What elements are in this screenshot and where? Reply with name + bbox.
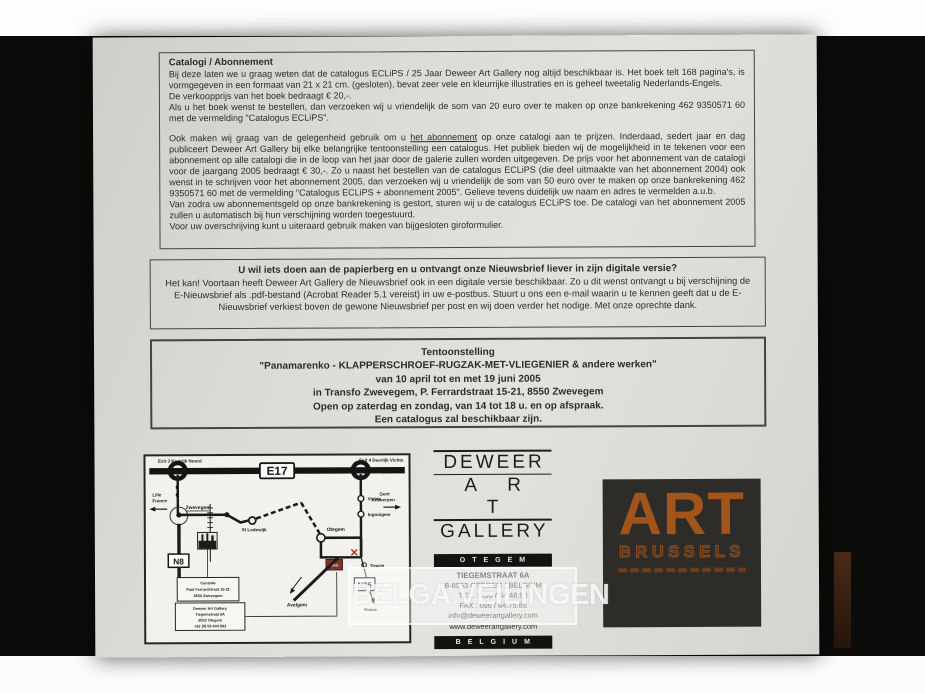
exit3-label: Exit 3 Kortrijk Noord xyxy=(158,458,202,463)
france-label: France xyxy=(152,498,167,503)
underlined-text: het abonnement xyxy=(410,132,477,142)
road-dashed-up xyxy=(256,503,301,519)
centrale-line3: 8550 Zwevegem xyxy=(194,594,224,598)
lille-label: Lille xyxy=(152,492,162,497)
n8-badge-label: N8 xyxy=(173,556,184,566)
red-cross-marker xyxy=(351,549,357,555)
factory-silhouette xyxy=(199,541,217,549)
st-lodewijk-label: St Lodewijk xyxy=(242,527,268,532)
gallery-line3: 8553 Otegem xyxy=(198,618,222,622)
factory-chimney xyxy=(211,535,213,541)
logo-word-gallery: GALLERY xyxy=(434,520,552,543)
art-brussels-subtitle: BRUSSELS xyxy=(603,543,761,563)
paragraph: Van zodra uw abonnementsgeld op onze ban… xyxy=(169,197,745,221)
top-white-band xyxy=(0,0,925,36)
photo-of-newsletter: Catalogi / Abonnement Bij deze laten we … xyxy=(0,0,925,694)
arrow-east-head xyxy=(395,505,401,510)
watermark-text: BELGA VEILINGEN xyxy=(350,569,575,621)
paragraph: Het kan! Voortaan heeft Deweer Art Galle… xyxy=(151,275,765,314)
factory-chimney xyxy=(206,533,208,541)
belgium-bar: BELGIUM xyxy=(434,635,552,649)
avelgem-arrow-shaft xyxy=(292,577,302,590)
road-dip xyxy=(227,515,249,523)
ingooigem-dot xyxy=(358,511,364,517)
otegem-label: Otegem xyxy=(327,527,346,533)
road-dashed-down xyxy=(301,503,320,534)
e17-badge-label: E17 xyxy=(267,465,288,478)
centrale-line1: Centrale xyxy=(200,581,215,585)
art-brussels-title: ART xyxy=(603,485,761,544)
section-catalogi-abonnement: Catalogi / Abonnement Bij deze laten we … xyxy=(159,50,756,250)
section-tentoonstelling: Tentoonstelling "Panamarenko - KLAPPERSC… xyxy=(150,337,766,430)
exit4-label: Exit 4 Deerlijk Vichte xyxy=(359,458,404,463)
gallery-line4: +32 (0) 56 644 893 xyxy=(194,624,226,628)
paragraph: Als u het boek wenst te bestellen, dan v… xyxy=(169,99,745,123)
background-object xyxy=(834,552,851,648)
arrow-west-head xyxy=(149,507,155,512)
signal-dot xyxy=(176,486,179,489)
centrale-line2: Paul Ferrardstraat 15-21 xyxy=(186,588,230,592)
paragraph: Voor uw overschrijving kunt u uiteraard … xyxy=(169,218,745,231)
gallery-line1: Deweer Art Gallery xyxy=(193,607,228,611)
signal-dot xyxy=(176,493,179,496)
logo-word-deweer: DEWEER xyxy=(433,451,551,474)
vichte-dot xyxy=(358,496,364,502)
logo-word-art: A R T xyxy=(434,475,552,520)
newsletter-page: Catalogi / Abonnement Bij deze laten we … xyxy=(93,34,820,657)
avelgem-label: Avelgem xyxy=(287,602,308,608)
gallery-line2: Tiegemstraat 6A xyxy=(195,613,225,617)
paragraph: Ook maken wij graag van de gelegenheid g… xyxy=(169,131,745,199)
st-lodewijk-roundabout xyxy=(249,517,256,524)
art-brussels-logo: ART BRUSSELS xyxy=(603,479,762,628)
factory-chimney xyxy=(201,534,203,541)
vichte-label: Vichte xyxy=(368,496,382,501)
otegem-bar: OTEGEM xyxy=(434,553,552,567)
otegem-junction xyxy=(317,534,325,542)
art-brussels-tagline-strip xyxy=(618,568,746,573)
text-run: Ook maken wij graag van de gelegenheid g… xyxy=(169,133,410,144)
connector-box-marker xyxy=(245,572,337,616)
road-loop xyxy=(321,538,361,558)
exhibition-catalog-note: Een catalogus zal beschikbaar zijn. xyxy=(152,412,764,428)
belga-veilingen-watermark: BELGA VEILINGEN xyxy=(348,567,577,625)
paragraph: Bij deze laten we u graag weten dat de c… xyxy=(169,67,745,91)
bottom-white-band xyxy=(0,656,925,694)
ingooigem-label: Ingooigem xyxy=(368,512,391,517)
section-digital-newsletter: U wil iets doen aan de papierberg en u o… xyxy=(150,257,766,330)
